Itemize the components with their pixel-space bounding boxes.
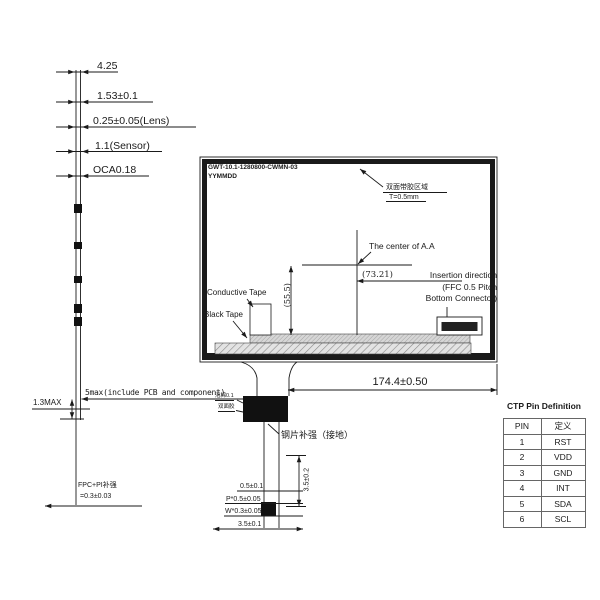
foam-label: 泡棉0.1 bbox=[215, 394, 234, 401]
insertion-note: Insertion direction (FFC 0.5 Pitch Botto… bbox=[400, 270, 497, 305]
layer-dim-total: 4.25 bbox=[97, 61, 117, 72]
pin-row-6: 6 SCL bbox=[503, 512, 585, 528]
steel-stiffener bbox=[243, 396, 288, 422]
dim-tail-width: W*0.3±0.05 bbox=[225, 508, 262, 515]
pin-table-header-def: 定义 bbox=[541, 419, 585, 435]
insertion-note-line2: (FFC 0.5 Pitch bbox=[400, 282, 497, 294]
adhesive-note-line2: T=0.5mm bbox=[389, 194, 419, 201]
adhesive-note-line1: 双面带胶区域 bbox=[386, 184, 428, 191]
pin-number: 4 bbox=[503, 481, 541, 497]
dim-tail-3-5-0-2: 3.5±0.2 bbox=[303, 462, 310, 498]
conductive-tape-label: Conductive Tape bbox=[207, 289, 266, 297]
pin-table-header-row: PIN 定义 bbox=[503, 419, 585, 435]
insertion-note-line3: Bottom Connector) bbox=[400, 293, 497, 305]
pin-definition-section: CTP Pin Definition PIN 定义 1 RST 2 VDD 3 … bbox=[498, 401, 590, 528]
tail-contact-area bbox=[261, 502, 276, 516]
pin-number: 5 bbox=[503, 496, 541, 512]
pin-table-header-pin: PIN bbox=[503, 419, 541, 435]
center-of-aa-label: The center of A.A bbox=[369, 242, 435, 251]
dim-tail-3-5-0-1: 3.5±0.1 bbox=[238, 521, 261, 528]
pin-number: 6 bbox=[503, 512, 541, 528]
pin-row-2: 2 VDD bbox=[503, 450, 585, 466]
pin-row-1: 1 RST bbox=[503, 434, 585, 450]
layer-dim-lens: 0.25±0.05(Lens) bbox=[93, 116, 169, 127]
stiffener-ground-label: 钢片补强（接地） bbox=[281, 431, 353, 440]
pin-table-title: CTP Pin Definition bbox=[498, 401, 590, 411]
dim-width: 174.4±0.50 bbox=[330, 377, 470, 389]
layer-dim-oca: OCA0.18 bbox=[93, 165, 136, 176]
part-number: GWT-10.1-1280800-CWMN-03 bbox=[208, 165, 298, 172]
pin-row-4: 4 INT bbox=[503, 481, 585, 497]
fpc-tail bbox=[213, 362, 306, 529]
pin-signal: SDA bbox=[541, 496, 585, 512]
layer-dim-cover: 1.53±0.1 bbox=[97, 91, 138, 102]
pin-signal: VDD bbox=[541, 450, 585, 466]
layer-dim-sensor: 1.1(Sensor) bbox=[95, 141, 150, 152]
dim-tail-0-5: 0.5±0.1 bbox=[240, 483, 263, 490]
pin-number: 1 bbox=[503, 434, 541, 450]
fpc-pi-note-line2: =0.3±0.03 bbox=[80, 493, 111, 500]
adhesive-small-label: 双面胶 bbox=[218, 405, 235, 412]
dim-73-21: (73.21) bbox=[362, 271, 393, 280]
thickness-note: 5max(include PCB and component) bbox=[85, 389, 225, 397]
hatch-strip-lower bbox=[215, 343, 471, 354]
pin-row-3: 3 GND bbox=[503, 465, 585, 481]
pin-table: PIN 定义 1 RST 2 VDD 3 GND 4 INT 5 SDA bbox=[503, 418, 586, 528]
insertion-note-line1: Insertion direction bbox=[400, 270, 497, 282]
pin-signal: SCL bbox=[541, 512, 585, 528]
bottom-max-dim: 1.3MAX bbox=[33, 399, 61, 407]
pin-signal: GND bbox=[541, 465, 585, 481]
fpc-pi-note-line1: FPC+PI补强 bbox=[78, 482, 117, 489]
pin-number: 3 bbox=[503, 465, 541, 481]
pin-signal: RST bbox=[541, 434, 585, 450]
dim-tail-pitch: P*0.5±0.05 bbox=[226, 496, 261, 503]
tp-engineering-drawing: 4.25 1.53±0.1 0.25±0.05(Lens) 1.1(Sensor… bbox=[0, 0, 600, 600]
date-code: YYMMDD bbox=[208, 174, 237, 181]
black-tape-label: Black Tape bbox=[204, 311, 243, 319]
tape-region bbox=[250, 304, 271, 335]
dim-55-5: (55.5) bbox=[284, 277, 292, 313]
pin-row-5: 5 SDA bbox=[503, 496, 585, 512]
pin-signal: INT bbox=[541, 481, 585, 497]
pin-number: 2 bbox=[503, 450, 541, 466]
